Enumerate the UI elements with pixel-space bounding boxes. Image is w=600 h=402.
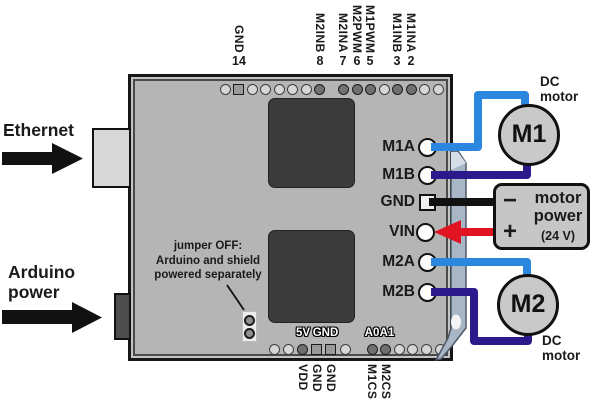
motor-power-title: motor power <box>530 189 586 225</box>
header-pin <box>421 344 432 355</box>
m2-caption-line2: motor <box>542 348 580 363</box>
right-pin-label-m2b: M2B <box>330 283 415 301</box>
wiring-diagram: GND 14 M2INB 8 M2INA 7 M2PWM 6 M1PWM 5 M… <box>0 0 600 402</box>
right-pin-label-vin: VIN <box>330 223 415 241</box>
top-pin-number: 5 <box>358 54 382 68</box>
bottom-pin-label: GND <box>323 364 339 392</box>
ethernet-connector <box>92 128 131 188</box>
pin-vin <box>416 223 435 242</box>
header-pin <box>379 84 390 95</box>
top-pin-label: GND <box>231 0 247 53</box>
silkscreen-a1: A1 <box>376 327 398 339</box>
jumper-pin-top <box>244 315 255 326</box>
top-pin-number: 2 <box>399 54 423 68</box>
m2-caption-line1: DC <box>542 333 580 348</box>
pin-gnd <box>419 194 436 211</box>
header-pin <box>365 84 376 95</box>
header-pin <box>407 344 418 355</box>
m1-caption-line1: DC <box>540 74 578 89</box>
header-pin <box>287 84 298 95</box>
right-pin-label-m1a: M1A <box>330 138 415 156</box>
top-pin-number: 14 <box>227 54 251 68</box>
pin-m1a <box>418 138 437 157</box>
motor-m2: M2 <box>497 274 559 336</box>
header-pin <box>269 344 280 355</box>
arduino-power-line1: Arduino <box>8 262 75 282</box>
ethernet-label: Ethernet <box>3 120 74 141</box>
header-pin <box>419 84 430 95</box>
top-pin-number: 8 <box>308 54 332 68</box>
ethernet-arrow-icon <box>2 143 83 174</box>
header-pin <box>406 84 417 95</box>
pin-m1b <box>418 166 437 185</box>
header-pin <box>314 84 325 95</box>
driver-chip-2 <box>268 230 355 323</box>
header-pin <box>311 344 322 355</box>
pin-m2b <box>418 283 437 302</box>
top-pin-label: M1INA <box>403 0 419 53</box>
bottom-pin-label: M2CS <box>378 364 394 399</box>
header-pin <box>394 344 405 355</box>
jumper-note-line3: powered separately <box>140 268 276 283</box>
power-jack-connector <box>114 293 131 340</box>
arduino-power-line2: power <box>8 282 75 302</box>
top-pin-label: M1PWM <box>362 0 378 53</box>
header-pin <box>233 84 244 95</box>
right-pin-label-m2a: M2A <box>330 253 415 271</box>
motor-power-line1: motor <box>530 189 586 207</box>
header-pin <box>283 344 294 355</box>
jumper-pin-bottom <box>244 328 255 339</box>
header-pin <box>380 344 391 355</box>
header-pin <box>338 84 349 95</box>
silkscreen-gnd: GND <box>311 327 340 339</box>
m1-caption: DC motor <box>540 74 578 104</box>
m2-caption: DC motor <box>542 333 580 363</box>
header-pin <box>297 344 308 355</box>
top-pin-label: M2INB <box>312 0 328 53</box>
header-pin <box>220 84 231 95</box>
jumper-note-line2: Arduino and shield <box>140 254 276 269</box>
arduino-power-label: Arduino power <box>8 262 75 302</box>
header-pin <box>352 84 363 95</box>
pin-m2a <box>418 253 437 272</box>
minus-symbol: − <box>495 191 525 211</box>
m1-caption-line2: motor <box>540 89 578 104</box>
right-pin-label-m1b: M1B <box>330 166 415 184</box>
arduino-power-arrow-icon <box>2 302 102 333</box>
header-pin <box>260 84 271 95</box>
jumper-note-line1: jumper OFF: <box>140 239 276 254</box>
motor-power-voltage: (24 V) <box>530 229 586 243</box>
motor-m1: M1 <box>498 104 560 166</box>
header-pin <box>340 344 351 355</box>
header-pin <box>274 84 285 95</box>
jumper-note: jumper OFF: Arduino and shield powered s… <box>140 239 276 283</box>
header-pin <box>325 344 336 355</box>
header-pin <box>247 84 258 95</box>
header-pin <box>392 84 403 95</box>
motor-power-line2: power <box>530 207 586 225</box>
right-pin-label-gnd: GND <box>330 193 415 211</box>
header-pin <box>435 344 446 355</box>
terminal-block-chamfer <box>451 152 466 170</box>
header-pin <box>433 84 444 95</box>
header-pin <box>301 84 312 95</box>
plus-symbol: + <box>495 222 525 242</box>
header-pin <box>367 344 378 355</box>
